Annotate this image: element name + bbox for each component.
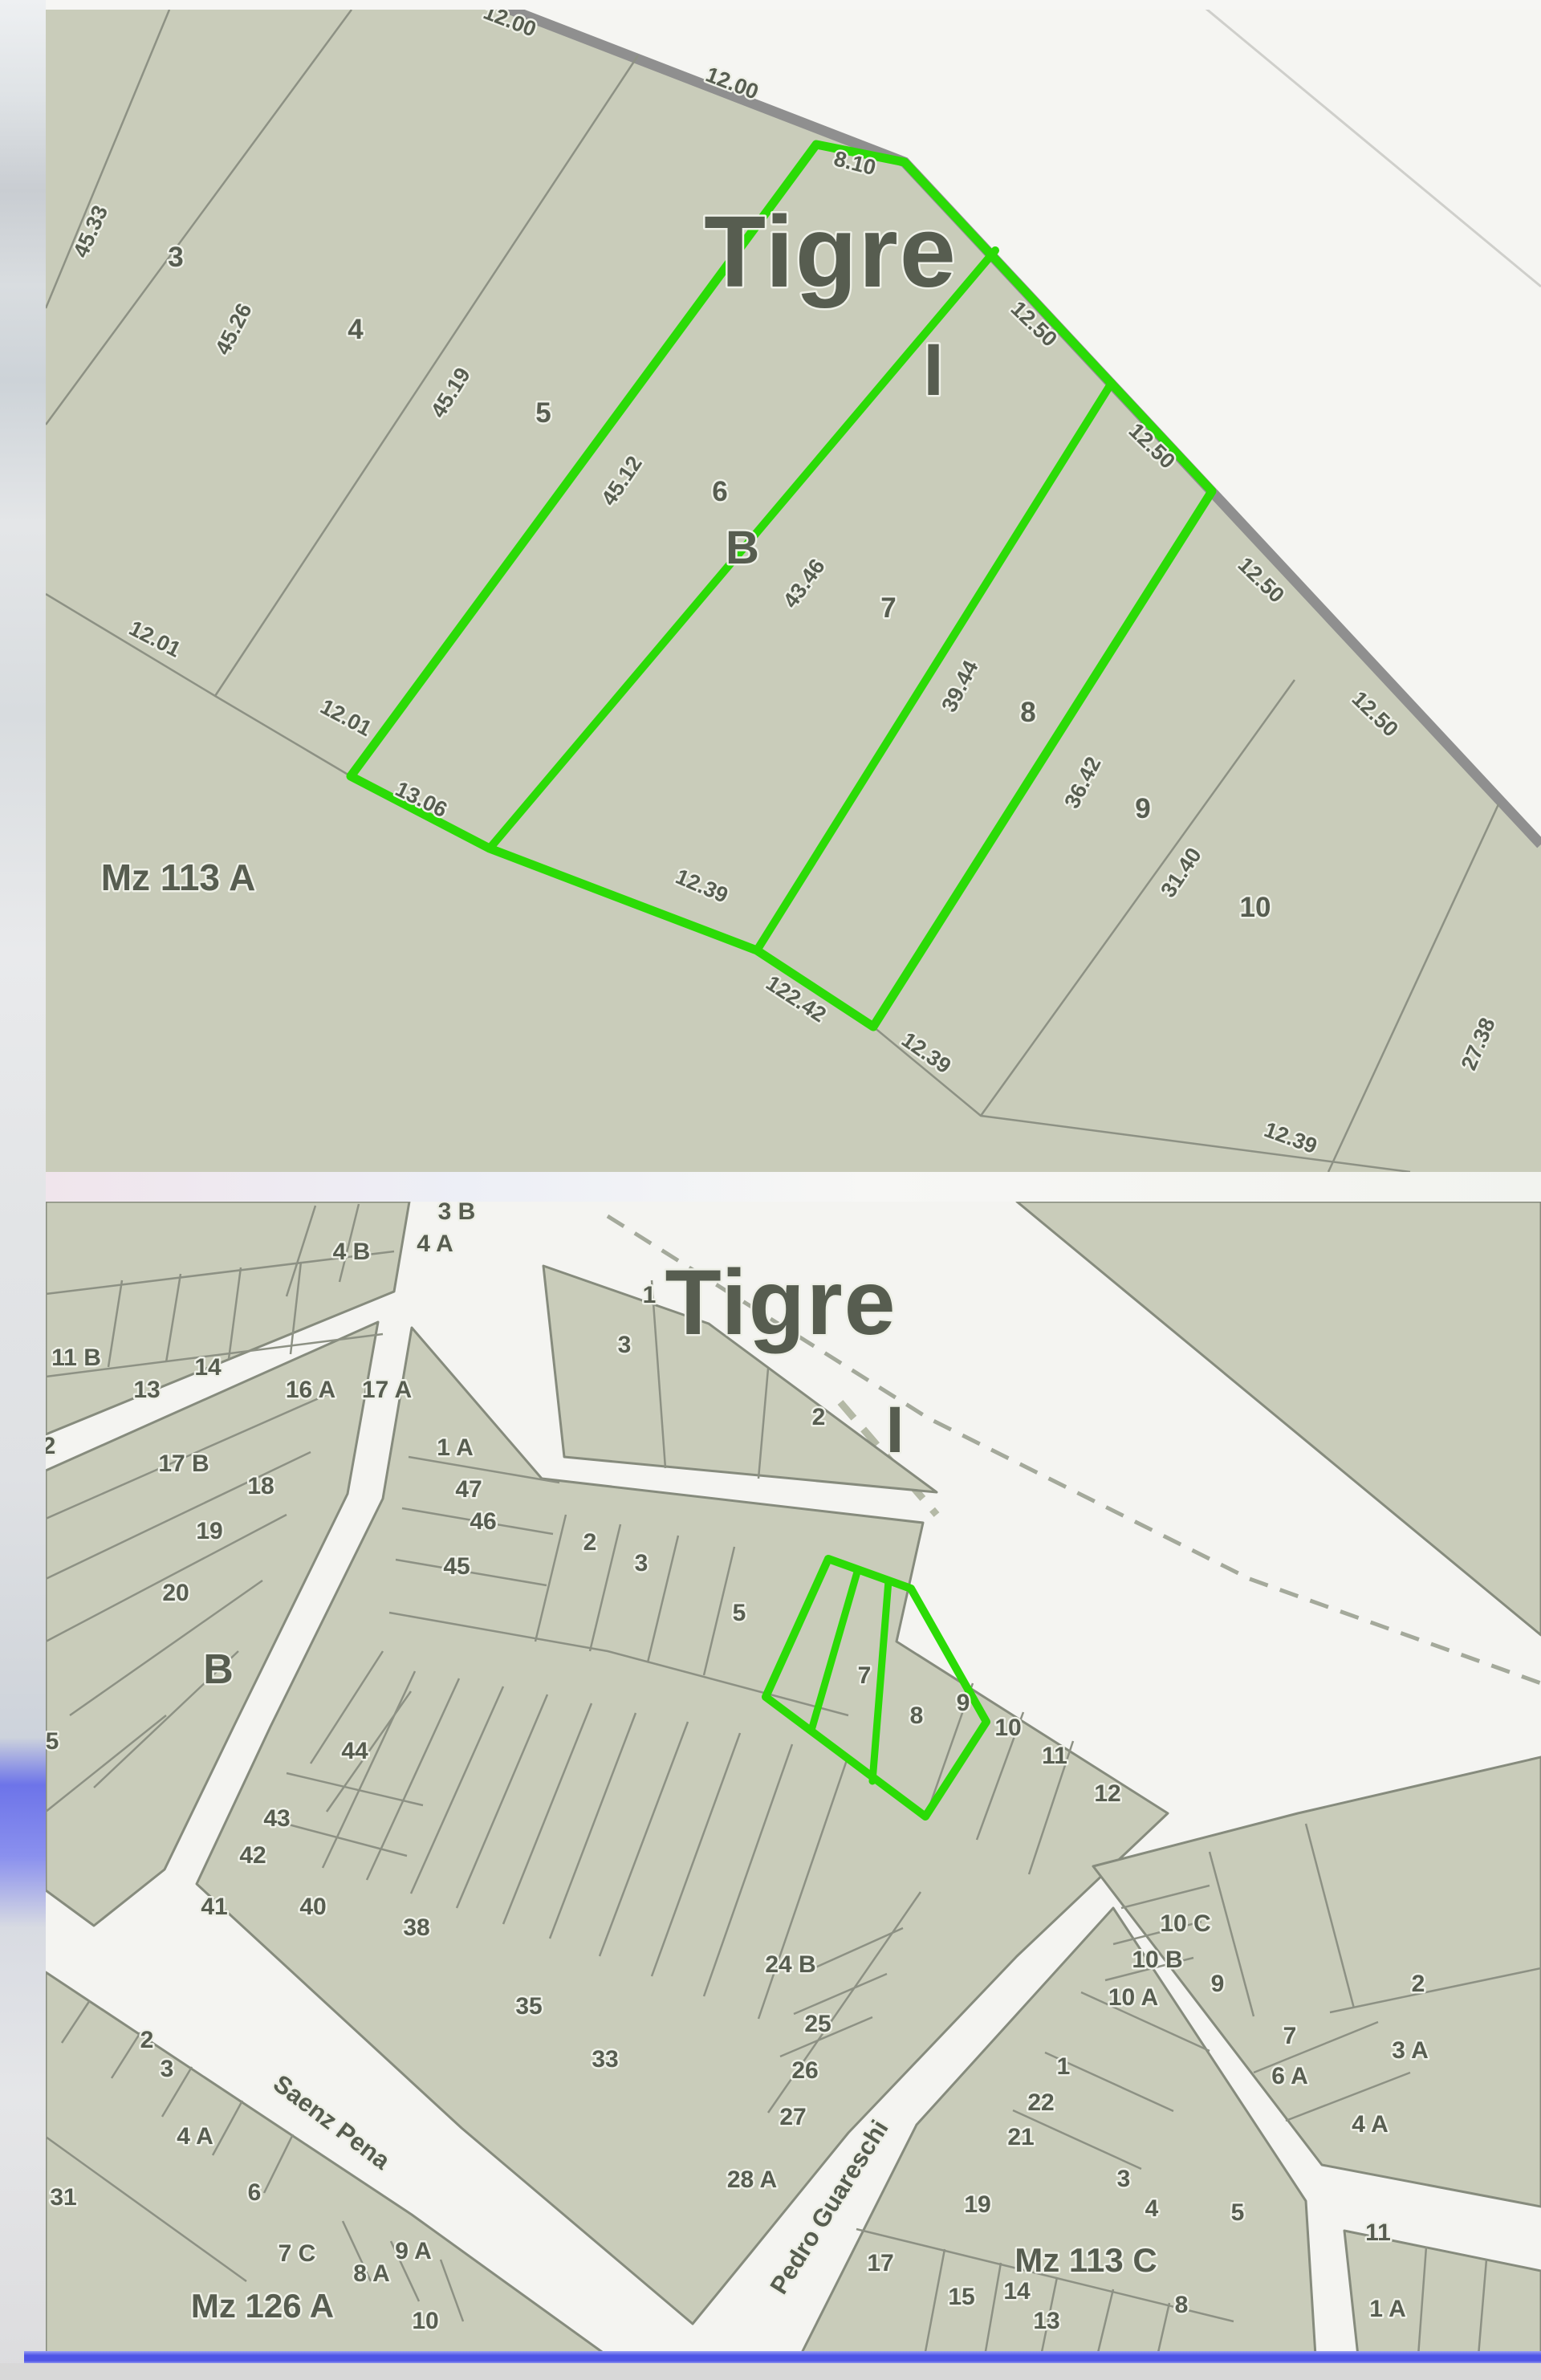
parcel-number: 13 [1033, 2308, 1059, 2334]
parcel-number: 3 [168, 242, 183, 273]
parcel-number: 1 [1057, 2053, 1071, 2080]
parcel-number: 26 [791, 2057, 818, 2084]
parcel-number: 5 [733, 1600, 746, 1626]
bottom-margin [0, 2363, 1541, 2380]
parcel-number: 8 A [353, 2260, 390, 2287]
parcel-number: 11 [1042, 1743, 1067, 1769]
parcel-number: 3 A [1392, 2037, 1429, 2064]
parcel-number: 19 [196, 1518, 222, 1544]
parcel-number: 1 A [437, 1434, 474, 1461]
parcel-number: 4 A [1352, 2111, 1389, 2138]
parcel-number: 3 [161, 2056, 174, 2082]
parcel-number: 4 A [417, 1231, 453, 1257]
parcel-number: 31 [50, 2184, 76, 2211]
parcel-number: 4 [348, 314, 364, 345]
parcel-number: 11 [1365, 2219, 1391, 2246]
parcel-number: 2 [1412, 1971, 1425, 1997]
parcel-number: 5 [46, 1728, 59, 1755]
parcel-number: 6 [248, 2179, 262, 2206]
parcel-number: 8 [1020, 697, 1035, 728]
parcel-number: 20 [162, 1580, 189, 1606]
parcel-number: 2 [812, 1404, 826, 1430]
parcel-number: 35 [515, 1993, 542, 2020]
parcel-number: 5 [1231, 2199, 1245, 2226]
parcel-number: 10 C [1160, 1910, 1210, 1937]
zone-letter: B [203, 1646, 234, 1693]
parcel-number: 14 [194, 1354, 222, 1381]
parcel-number: 12 [1094, 1780, 1120, 1807]
parcel-number: 40 [299, 1894, 326, 1920]
parcel-number: 8 [1175, 2292, 1189, 2318]
parcel-number: 9 [1211, 1971, 1225, 1997]
parcel-number: 41 [201, 1894, 227, 1920]
parcel-number: 6 A [1271, 2063, 1308, 2089]
parcel-number: 11 B [51, 1345, 101, 1371]
panel-gap [46, 1172, 1541, 1202]
parcel-number: 45 [443, 1553, 470, 1580]
map-top-cadastral-detail[interactable]: 12.0012.008.1012.5012.5012.5012.5045.334… [46, 10, 1541, 1172]
parcel-number: 47 [455, 1476, 482, 1503]
parcel-number: 2 [46, 1433, 55, 1459]
parcel-number: 7 [858, 1662, 872, 1689]
parcel-number: 9 [1135, 793, 1150, 824]
parcel-number: 7 [880, 592, 896, 624]
parcel-number: 25 [804, 2011, 831, 2037]
parcel-number: 44 [341, 1738, 368, 1764]
parcel-number: 9 A [395, 2238, 432, 2264]
parcel-number: 42 [239, 1842, 266, 1869]
parcel-number: 3 [1117, 2166, 1131, 2192]
parcel-number: 1 [643, 1282, 657, 1308]
parcel-number: 24 B [765, 1951, 815, 1978]
parcel-number: 13 [133, 1377, 160, 1403]
parcel-number: 1 A [1369, 2296, 1406, 2322]
parcel-number: 4 [1145, 2195, 1159, 2222]
parcel-number: 28 A [727, 2166, 777, 2193]
parcel-number: 3 B [438, 1202, 476, 1225]
parcel-number: 8 [910, 1703, 924, 1729]
block-label: Mz 126 A [191, 2287, 334, 2325]
parcel-number: 5 [535, 397, 551, 429]
parcel-number: 7 C [279, 2240, 316, 2267]
parcel-number: 10 [994, 1715, 1021, 1741]
background-photo-strip [0, 0, 46, 2380]
parcel-number: 9 [957, 1690, 970, 1716]
parcel-number: 10 B [1132, 1947, 1182, 1973]
parcel-number: 4 A [177, 2123, 213, 2150]
parcel-number: 27 [779, 2104, 806, 2130]
map-bottom-neighborhood[interactable]: TigreIBMz 126 AMz 113 CSaenz PenaPedro G… [46, 1202, 1541, 2356]
parcel-number: 33 [592, 2046, 618, 2073]
parcel-number: 19 [964, 2191, 990, 2218]
parcel-number: 17 [867, 2250, 893, 2276]
parcel-number: 17 A [362, 1377, 412, 1403]
parcel-number: 21 [1007, 2124, 1034, 2150]
parcel-number: 18 [247, 1473, 274, 1499]
parcel-number: 15 [948, 2284, 974, 2310]
parcel-number: 14 [1003, 2278, 1031, 2305]
block-label: Mz 113 C [1014, 2241, 1157, 2279]
parcel-number: 10 [1240, 892, 1271, 923]
parcel-number: 17 B [158, 1450, 209, 1477]
parcel-number: 46 [470, 1508, 496, 1535]
parcel-number: 10 A [1108, 1984, 1158, 2011]
map-title: Tigre [665, 1251, 897, 1354]
parcel-number: 7 [1283, 2023, 1297, 2049]
parcel-number: 2 [140, 2027, 154, 2053]
parcel-number: 2 [583, 1529, 597, 1556]
slide-canvas: 12.0012.008.1012.5012.5012.5012.5045.334… [0, 0, 1541, 2380]
parcel-number: 16 A [286, 1377, 335, 1403]
zone-letter: B [726, 522, 759, 574]
block-label: Mz 113 A [101, 856, 256, 898]
parcel-number: 3 [635, 1550, 649, 1576]
parcel-number: 4 B [333, 1239, 371, 1265]
parcel-number: 38 [403, 1914, 429, 1941]
parcel-number: 3 [618, 1332, 632, 1358]
map-title: Tigre [704, 195, 958, 308]
section-numeral: I [923, 329, 944, 411]
parcel-number: 22 [1027, 2089, 1054, 2116]
parcel-number: 6 [712, 476, 727, 507]
parcel-number: 10 [412, 2308, 438, 2334]
section-numeral: I [886, 1393, 905, 1467]
parcel-number: 43 [263, 1805, 290, 1832]
bottom-blue-bar [24, 2351, 1541, 2363]
